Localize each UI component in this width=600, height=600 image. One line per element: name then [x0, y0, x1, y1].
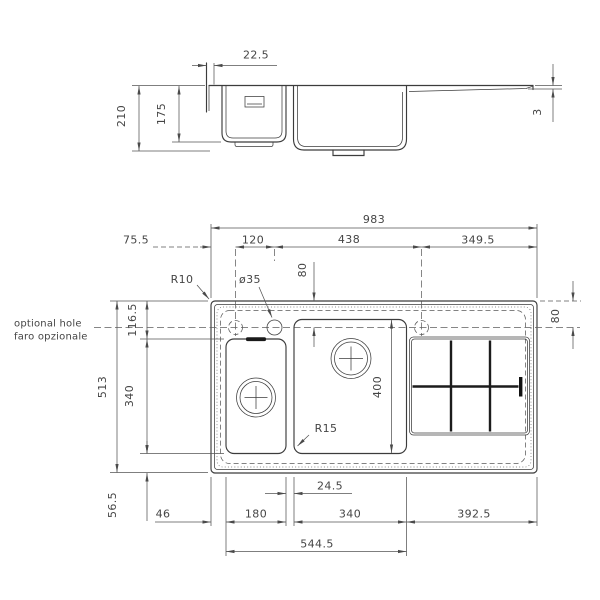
label-r15: R15	[315, 422, 338, 435]
optional-hole-label-it: faro opzionale	[14, 332, 88, 343]
sink-technical-drawing: 22.5 210 175 3	[0, 0, 600, 600]
small-bowl-drain-cross	[245, 386, 268, 409]
big-bowl-section-outer	[294, 86, 407, 150]
small-bowl-underside	[235, 142, 273, 147]
dims-right: 80	[540, 281, 581, 349]
big-bowl	[294, 320, 407, 454]
leader-r10: R10	[171, 273, 209, 299]
leader-r15: R15	[298, 422, 338, 446]
dim-drainer-step: 3	[528, 64, 562, 122]
label-tap-hole-diameter: ø35	[239, 273, 261, 286]
optional-hole-annotation: optional hole faro opzionale	[14, 319, 88, 343]
dim-small-bowl-length: 340	[123, 385, 136, 407]
overflow-box	[245, 97, 264, 108]
dim-edge-to-small-bowl: 46	[156, 508, 171, 521]
dim-big-bowl-depth: 400	[371, 376, 384, 398]
big-bowl-section-inner	[298, 86, 403, 147]
dim-small-bowl-width: 180	[245, 508, 267, 521]
small-bowl-overflow-slot	[246, 337, 266, 341]
dim-hole3-to-edge: 349.5	[461, 234, 495, 247]
big-bowl-drain-cross	[339, 347, 363, 371]
side-section-view: 22.5 210 175 3	[115, 49, 562, 156]
dim-rim-offset-label: 22.5	[243, 49, 269, 62]
dim-drainer-step-label: 3	[531, 108, 544, 115]
dim-big-bowl-width: 340	[339, 508, 361, 521]
dims-bottom: 24.5 46 180 340 392.5 544.5	[155, 477, 537, 556]
drainer-grid	[413, 341, 519, 432]
dim-rim-offset: 22.5	[192, 49, 277, 85]
small-bowl-section-outer	[222, 86, 286, 142]
small-bowl-section-inner	[226, 86, 282, 138]
dim-big-bowl-to-edge: 392.5	[457, 508, 491, 521]
plan-view: R10 ø35 R15 983 75.5 120 438 349.5	[14, 213, 581, 556]
dim-top-to-bowl: 116.5	[126, 303, 139, 337]
drainer-grid-handle	[519, 377, 522, 397]
dim-bowl-depth-label: 175	[155, 103, 168, 125]
dim-edge-to-hole1: 75.5	[123, 234, 149, 247]
dim-bowls-span: 544.5	[300, 538, 334, 551]
dim-bowl-gap: 24.5	[317, 480, 343, 493]
dim-bowl-depth: 175	[155, 86, 221, 142]
dim-overall-width: 983	[363, 213, 385, 226]
dim-bowl-to-bottom-edge: 56.5	[106, 492, 119, 518]
drain-stub	[333, 150, 364, 156]
dims-inner: 80 400	[296, 262, 392, 453]
dim-hole2-to-hole3: 438	[338, 233, 360, 246]
dim-total-depth-label: 210	[115, 105, 128, 127]
drainboard-slope-line	[409, 86, 533, 91]
dim-hole-offset-right: 80	[549, 309, 562, 324]
dim-overall-depth: 513	[96, 376, 109, 398]
label-r10: R10	[171, 273, 194, 286]
dims-left: 513 116.5 340 56.5	[96, 301, 224, 521]
optional-hole-label-en: optional hole	[14, 319, 82, 330]
dim-hole-offset-left: 80	[296, 263, 309, 278]
dim-hole1-to-hole2: 120	[242, 234, 264, 247]
